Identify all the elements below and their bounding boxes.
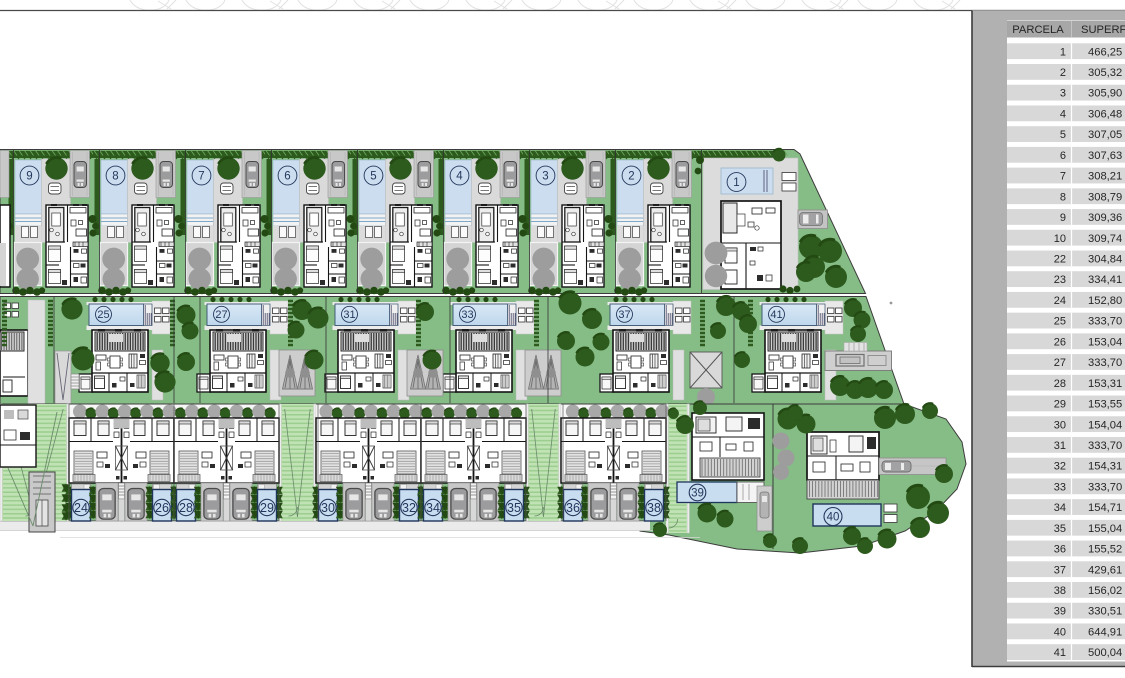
svg-text:33: 33 xyxy=(1054,481,1066,493)
svg-text:6: 6 xyxy=(1060,150,1066,162)
svg-text:333,70: 333,70 xyxy=(1088,481,1122,493)
svg-text:5: 5 xyxy=(370,171,376,183)
svg-text:9: 9 xyxy=(1060,212,1066,224)
svg-text:40: 40 xyxy=(1054,626,1066,638)
svg-text:24: 24 xyxy=(74,501,88,515)
svg-text:34: 34 xyxy=(1054,502,1066,514)
svg-text:33: 33 xyxy=(461,309,473,321)
svg-text:35: 35 xyxy=(507,501,521,515)
svg-text:153,55: 153,55 xyxy=(1088,399,1122,411)
svg-text:155,52: 155,52 xyxy=(1088,544,1122,556)
svg-text:333,70: 333,70 xyxy=(1088,316,1122,328)
svg-text:334,41: 334,41 xyxy=(1088,274,1122,286)
svg-text:307,63: 307,63 xyxy=(1088,150,1122,162)
svg-text:38: 38 xyxy=(1054,585,1066,597)
svg-text:156,02: 156,02 xyxy=(1088,585,1122,597)
svg-text:27: 27 xyxy=(215,309,227,321)
svg-text:26: 26 xyxy=(155,501,169,515)
svg-text:8: 8 xyxy=(112,171,118,183)
svg-text:309,74: 309,74 xyxy=(1088,233,1122,245)
svg-text:154,31: 154,31 xyxy=(1088,461,1122,473)
svg-text:30: 30 xyxy=(321,501,335,515)
svg-text:36: 36 xyxy=(566,501,580,515)
svg-text:2: 2 xyxy=(628,171,634,183)
svg-text:24: 24 xyxy=(1054,295,1066,307)
svg-text:7: 7 xyxy=(1060,171,1066,183)
svg-text:28: 28 xyxy=(1054,378,1066,390)
svg-text:500,04: 500,04 xyxy=(1088,647,1122,659)
svg-text:4: 4 xyxy=(456,171,463,183)
svg-text:28: 28 xyxy=(179,501,193,515)
svg-text:40: 40 xyxy=(827,512,840,524)
svg-text:304,84: 304,84 xyxy=(1088,254,1122,266)
svg-text:305,32: 305,32 xyxy=(1088,67,1122,79)
svg-text:2: 2 xyxy=(1060,67,1066,79)
svg-text:25: 25 xyxy=(1054,316,1066,328)
svg-text:155,04: 155,04 xyxy=(1088,523,1122,535)
svg-text:333,70: 333,70 xyxy=(1088,357,1122,369)
svg-text:37: 37 xyxy=(618,309,630,321)
svg-text:306,48: 306,48 xyxy=(1088,108,1122,120)
svg-text:39: 39 xyxy=(1054,606,1066,618)
svg-text:308,79: 308,79 xyxy=(1088,191,1122,203)
svg-text:3: 3 xyxy=(1060,88,1066,100)
svg-text:32: 32 xyxy=(402,501,416,515)
svg-text:35: 35 xyxy=(1054,523,1066,535)
svg-text:152,80: 152,80 xyxy=(1088,295,1122,307)
svg-text:39: 39 xyxy=(691,487,704,499)
svg-text:29: 29 xyxy=(260,501,274,515)
svg-text:1: 1 xyxy=(733,177,739,189)
svg-text:154,71: 154,71 xyxy=(1088,502,1122,514)
svg-text:34: 34 xyxy=(426,501,440,515)
svg-text:6: 6 xyxy=(284,171,290,183)
svg-text:30: 30 xyxy=(1054,419,1066,431)
svg-text:22: 22 xyxy=(1054,254,1066,266)
svg-text:41: 41 xyxy=(770,309,782,321)
svg-text:1: 1 xyxy=(1060,46,1066,58)
svg-text:330,51: 330,51 xyxy=(1088,606,1122,618)
svg-text:153,04: 153,04 xyxy=(1088,336,1122,348)
svg-text:4: 4 xyxy=(1060,108,1066,120)
svg-text:37: 37 xyxy=(1054,564,1066,576)
svg-text:31: 31 xyxy=(343,309,355,321)
svg-text:41: 41 xyxy=(1054,647,1066,659)
svg-text:153,31: 153,31 xyxy=(1088,378,1122,390)
svg-text:9: 9 xyxy=(26,171,32,183)
svg-text:38: 38 xyxy=(647,501,661,515)
svg-text:36: 36 xyxy=(1054,544,1066,556)
svg-text:305,90: 305,90 xyxy=(1088,88,1122,100)
svg-text:644,91: 644,91 xyxy=(1088,626,1122,638)
svg-text:5: 5 xyxy=(1060,129,1066,141)
svg-text:SUPERFICIE: SUPERFICIE xyxy=(1081,24,1125,36)
svg-text:333,70: 333,70 xyxy=(1088,440,1122,452)
svg-text:308,21: 308,21 xyxy=(1088,171,1122,183)
svg-text:PARCELA: PARCELA xyxy=(1012,24,1064,36)
svg-text:429,61: 429,61 xyxy=(1088,564,1122,576)
svg-text:23: 23 xyxy=(1054,274,1066,286)
svg-text:31: 31 xyxy=(1054,440,1066,452)
svg-text:10: 10 xyxy=(1054,233,1066,245)
svg-text:26: 26 xyxy=(1054,336,1066,348)
svg-text:32: 32 xyxy=(1054,461,1066,473)
svg-text:8: 8 xyxy=(1060,191,1066,203)
svg-text:466,25: 466,25 xyxy=(1088,46,1122,58)
svg-text:7: 7 xyxy=(198,171,204,183)
svg-text:27: 27 xyxy=(1054,357,1066,369)
svg-text:3: 3 xyxy=(542,171,548,183)
svg-text:309,36: 309,36 xyxy=(1088,212,1122,224)
svg-text:25: 25 xyxy=(97,309,109,321)
svg-text:29: 29 xyxy=(1054,399,1066,411)
svg-text:154,04: 154,04 xyxy=(1088,419,1122,431)
svg-text:307,05: 307,05 xyxy=(1088,129,1122,141)
